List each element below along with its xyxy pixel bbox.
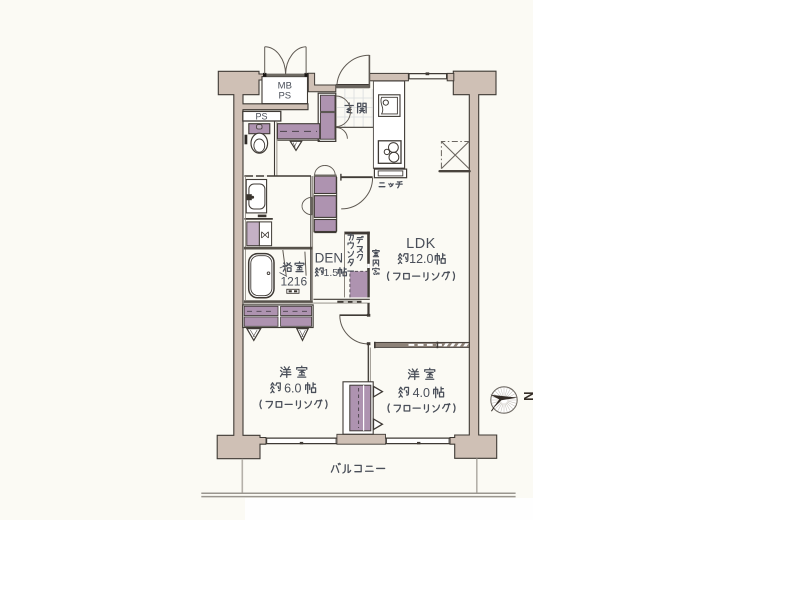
- svg-text:6.0: 6.0: [284, 381, 301, 395]
- svg-text:12.0: 12.0: [409, 252, 433, 266]
- svg-text:PS: PS: [278, 90, 291, 101]
- svg-text:LDK: LDK: [406, 236, 436, 252]
- svg-text:4.0: 4.0: [413, 386, 430, 400]
- svg-text:1.5: 1.5: [323, 267, 338, 279]
- svg-text:N: N: [521, 392, 536, 401]
- svg-text:PS: PS: [255, 112, 267, 122]
- svg-text:1216: 1216: [280, 275, 307, 289]
- svg-text:DEN: DEN: [315, 250, 344, 265]
